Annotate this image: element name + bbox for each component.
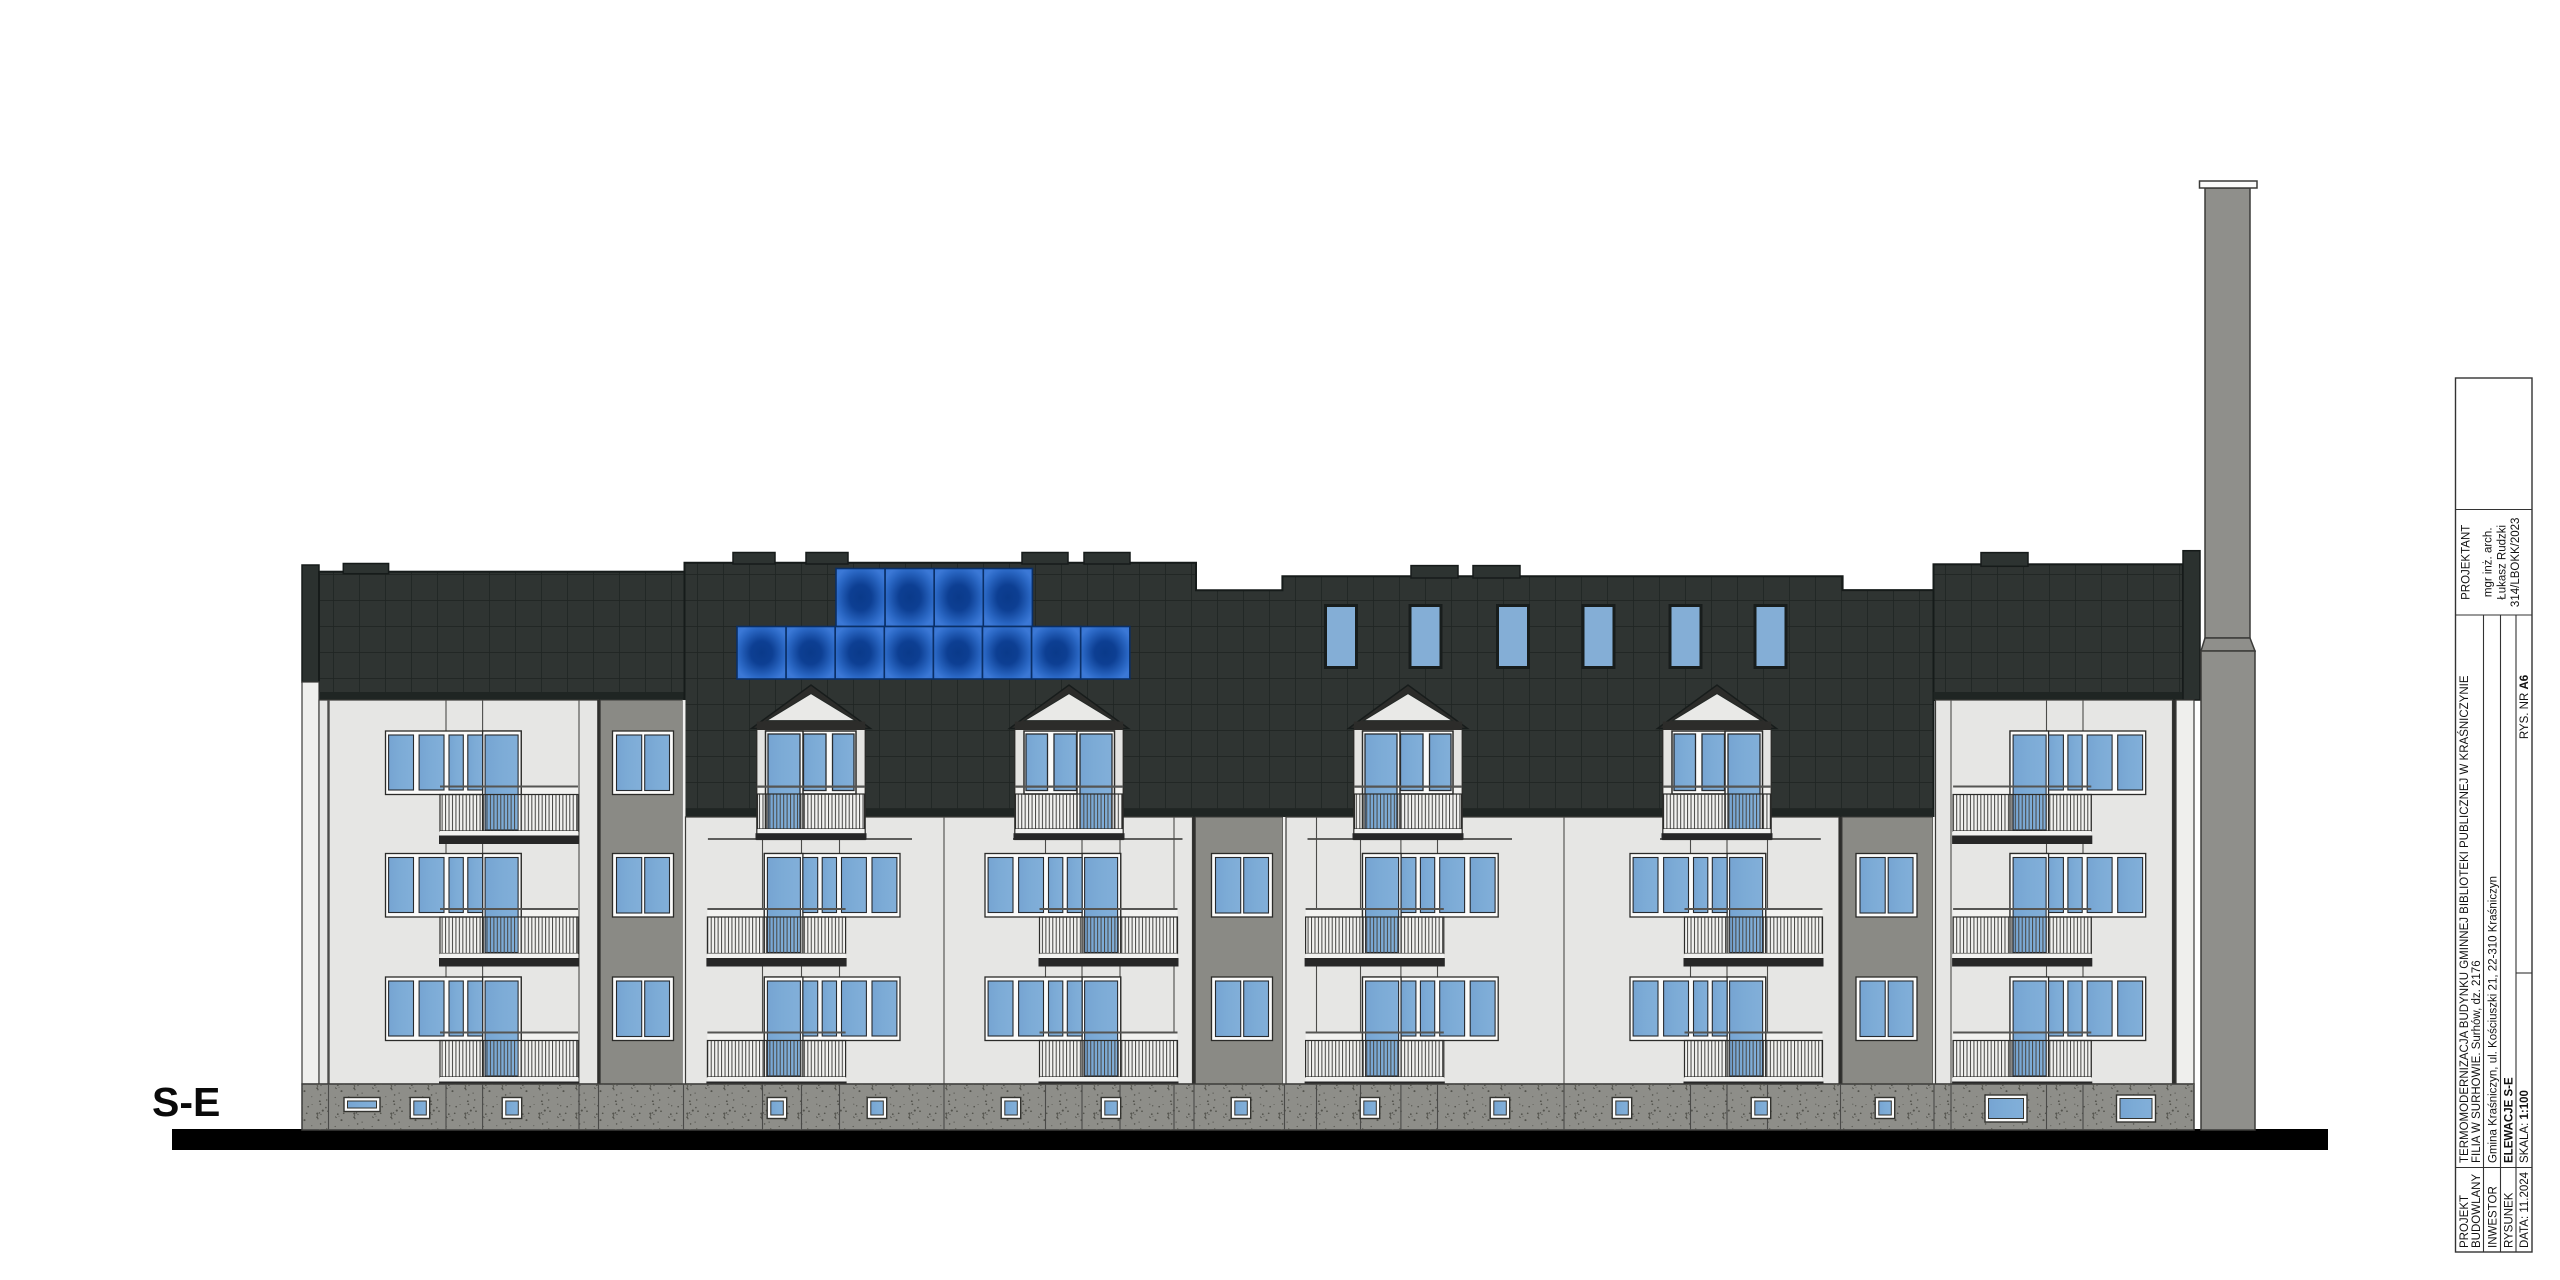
svg-text:S-E: S-E [152,1079,220,1125]
svg-text:DATA: 11.2024: DATA: 11.2024 [2519,1171,2531,1248]
svg-text:314/LBOKK/2023: 314/LBOKK/2023 [2510,518,2522,608]
svg-text:PROJEKT: PROJEKT [2459,1195,2471,1248]
svg-text:BUDOWLANY: BUDOWLANY [2471,1174,2483,1248]
svg-text:FILIA W SURHOWIE. Surhów, dz.: FILIA W SURHOWIE. Surhów, dz. 2176 [2471,960,2483,1163]
svg-text:mgr inż. arch.: mgr inż. arch. [2483,527,2495,597]
svg-text:ELEWACJE S-E: ELEWACJE S-E [2504,1077,2516,1163]
svg-text:INWESTOR: INWESTOR [2488,1186,2500,1248]
svg-text:TERMOMODERNIZACJA BUDYNKU GMIN: TERMOMODERNIZACJA BUDYNKU GMINNEJ BIBLIO… [2458,675,2471,1163]
svg-text:RYSUNEK: RYSUNEK [2504,1192,2516,1248]
svg-text:SKALA: 1:100: SKALA: 1:100 [2519,1090,2531,1163]
svg-text:PROJEKTANT: PROJEKTANT [2461,525,2473,600]
svg-text:Łukasz Rudzki: Łukasz Rudzki [2497,525,2509,600]
svg-text:RYS. NR A6: RYS. NR A6 [2519,675,2531,739]
svg-text:Gmina Kraśniczyn, ul. Kościusz: Gmina Kraśniczyn, ul. Kościuszki 21, 22-… [2488,876,2500,1163]
